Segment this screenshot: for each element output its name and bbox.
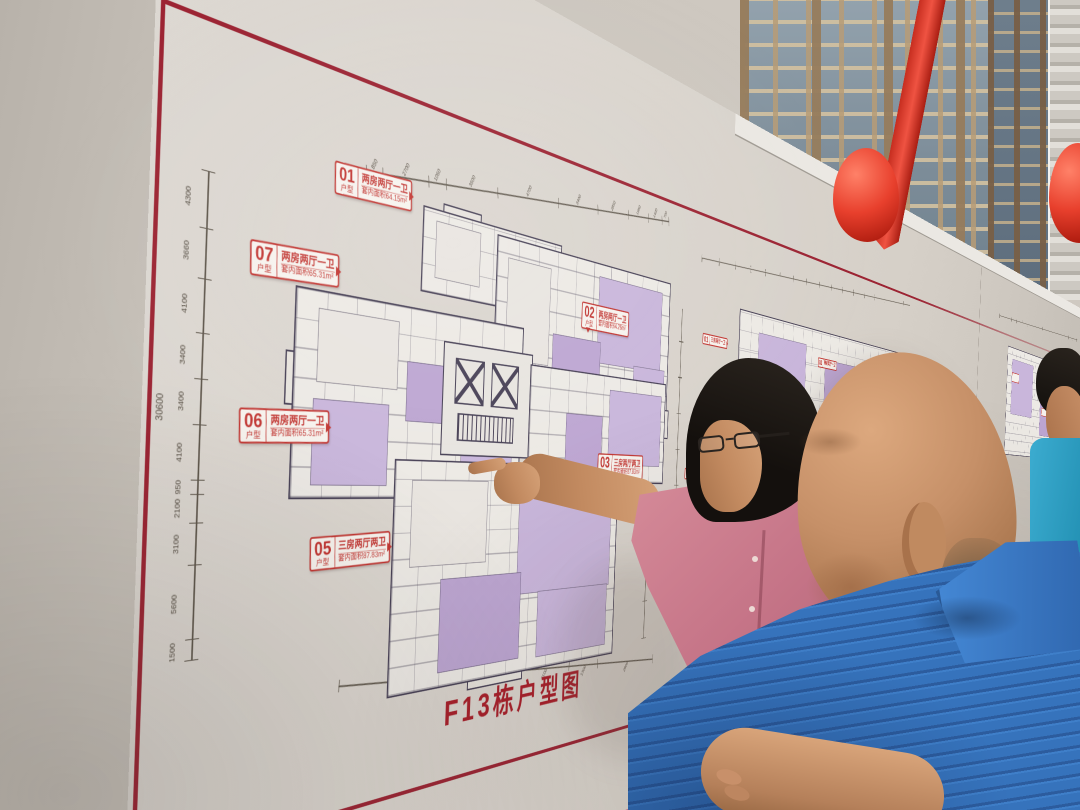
dim-value: 3500 [468,174,476,189]
dim-value: 3400 [178,344,187,364]
shirt-button [749,606,755,612]
glasses-lens [733,431,761,450]
dim-value: 700 [663,210,668,220]
p2-dimension-chain-top [702,254,910,308]
dim-value: 4100 [180,293,189,314]
dim-value: 2850 [610,199,616,212]
dimension-chain-left: 4300 3660 4100 3400 3400 4100 950 2100 3… [174,166,219,663]
unit-label-07: 07户型 两房两厅一卫套内面积65.31m² [250,239,339,288]
unit-type-word: 户型 [246,432,261,441]
collar-shadow [912,596,1022,640]
unit-number: 02 [819,359,822,367]
glasses-lens [697,435,725,454]
dim-value: 4100 [175,442,184,462]
dim-value: 2700 [401,162,410,178]
unit-type-word: 户型 [257,264,272,275]
unit-number: 07 [255,243,273,266]
unit-label-06: 06户型 两房两厅一卫套内面积65.31m² [239,407,329,443]
unit-type-word: 户型 [341,184,354,196]
unit-layout: 两房两厅一卫 [270,413,324,430]
dim-value: 1950 [636,204,642,216]
brow-shadow [798,428,862,456]
unit-label-05: 05户型 三房两厅两卫套内面积87.83m² [309,531,390,572]
glasses-bridge [726,438,734,441]
dim-value: 4700 [525,184,532,198]
dim-value: 850 [370,157,379,171]
dim-value: 950 [173,480,182,495]
dim-value: 3400 [176,391,185,411]
dim-value: 5600 [169,594,178,614]
unit-layout: 三房两厅一卫 [711,337,726,347]
elevator-core [440,341,533,459]
dim-value: 1400 [653,207,658,219]
unit-number: 01 [704,335,709,344]
photo-scene: 4300 3660 4100 3400 3400 4100 950 2100 3… [0,0,1080,810]
unit-number: 06 [244,410,262,430]
dim-value: 4300 [184,185,193,206]
dim-value: 3400 [575,193,581,206]
red-balloon-left [833,148,899,242]
dim-value: 3100 [171,535,180,555]
dim-value: 1050 [433,167,442,182]
dim-value: 3660 [182,239,191,260]
apartment-tower-middle [988,0,1048,300]
unit-number: 05 [314,538,331,559]
p3-unit-label [1012,372,1019,383]
shirt-button [752,556,758,562]
unit-area: 套内面积65.31m² [270,429,324,440]
dim-value: 1500 [168,642,177,662]
unit-type-word: 户型 [316,559,329,569]
unit-layout: 两房两厅一卫 [824,360,836,369]
dim-value: 2100 [173,499,182,519]
p3-dimension-chain-top [1000,313,1078,341]
dim-total: 30600 [156,393,167,421]
p2-unit-label-01: 01 三房两厅一卫 [702,333,727,349]
